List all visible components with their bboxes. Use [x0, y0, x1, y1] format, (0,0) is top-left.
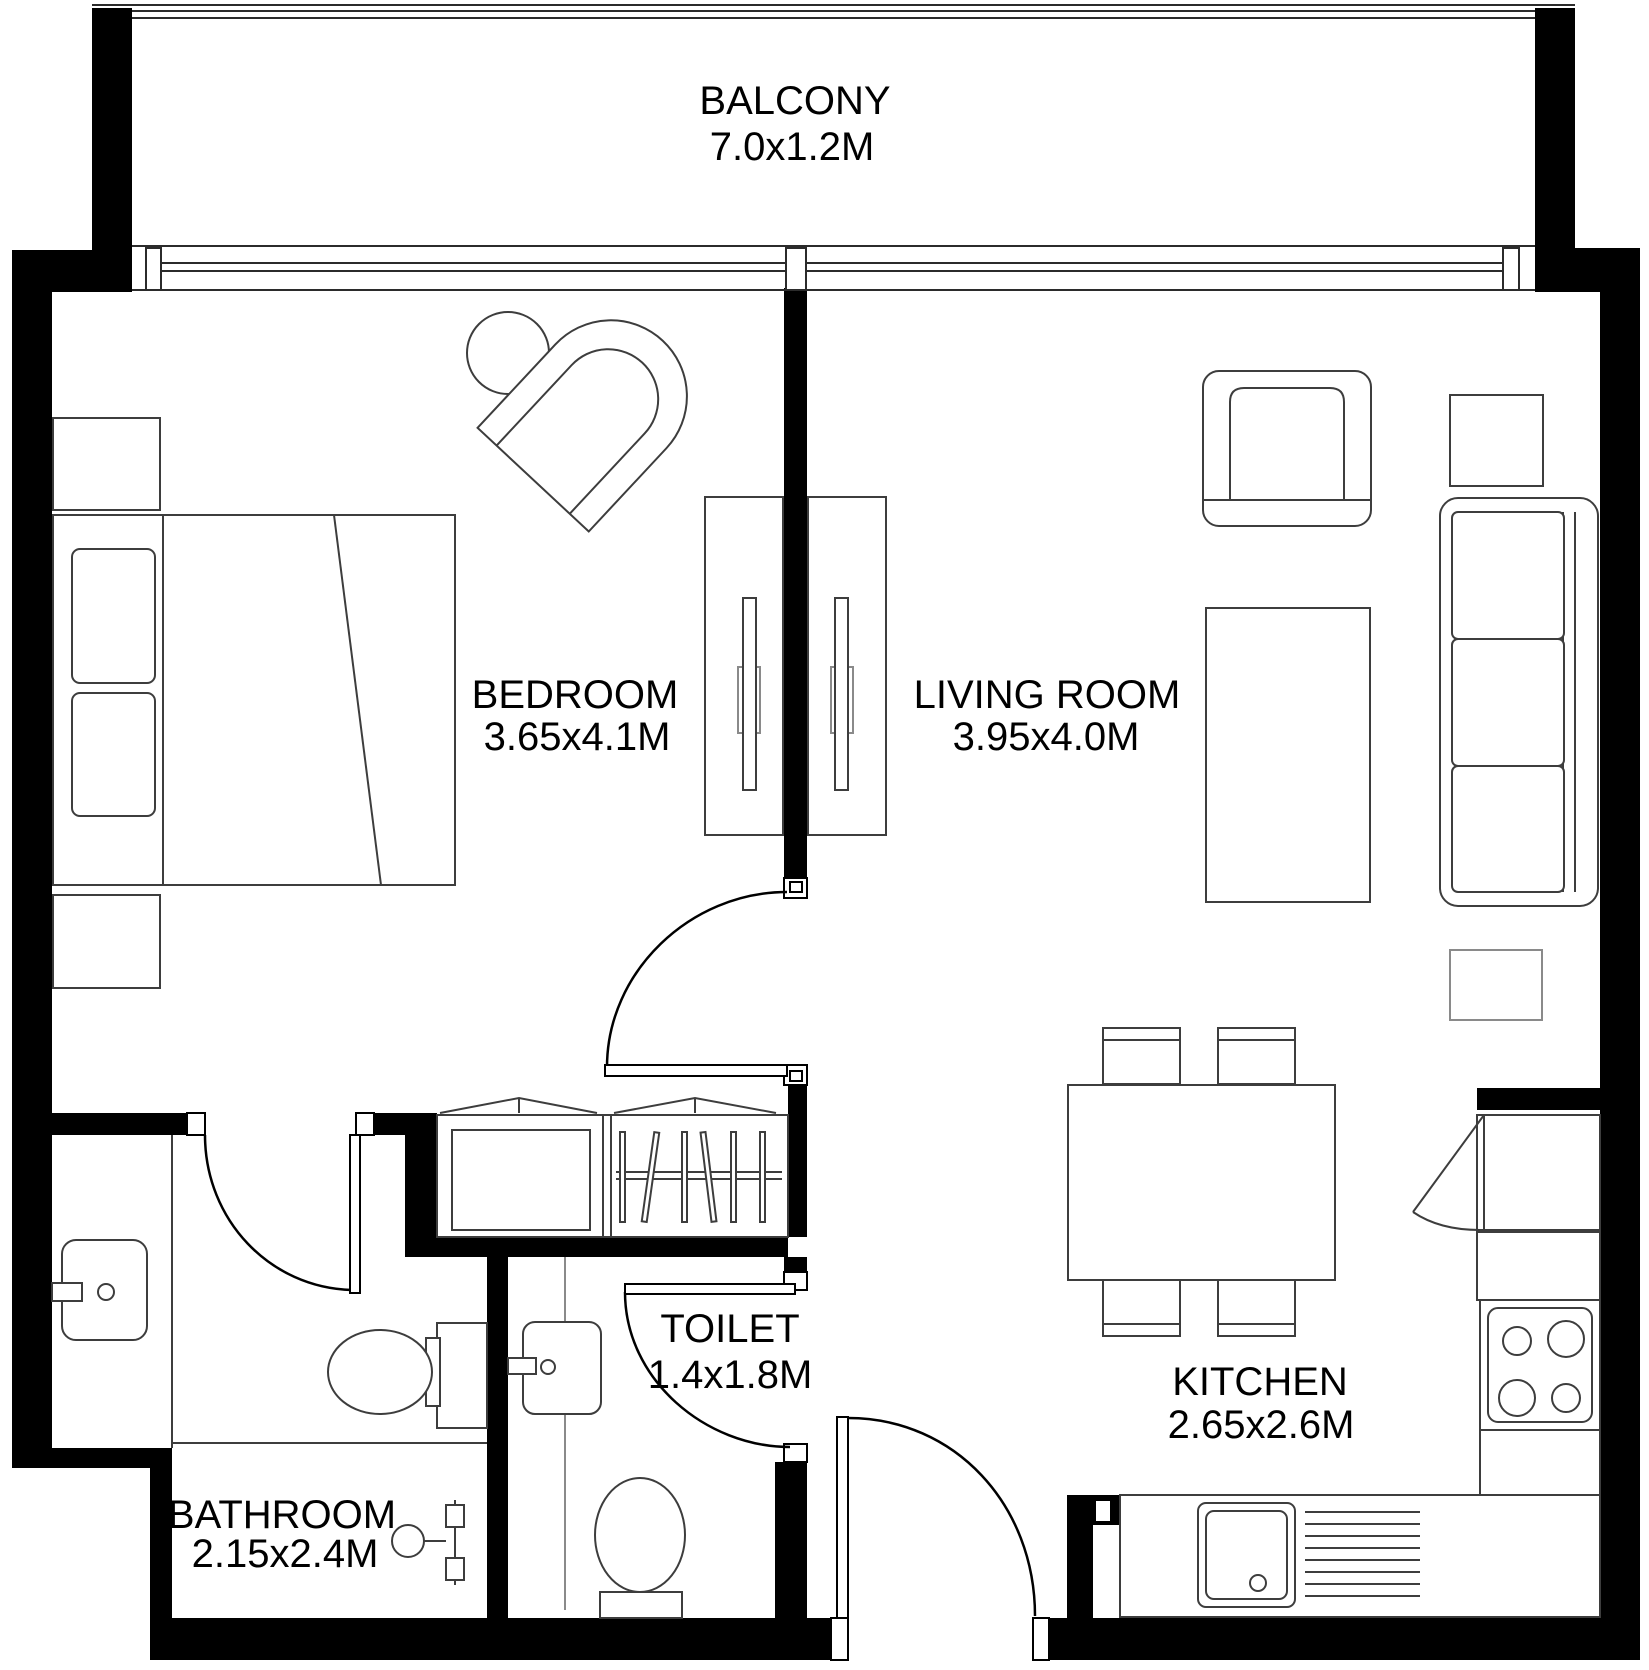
bathroom-closet-divider-wall — [405, 1135, 437, 1237]
bathroom-door — [205, 1135, 360, 1293]
floor-plan: BALCONY 7.0x1.2M BEDROOM 3.65x4.1M LIVIN… — [0, 0, 1649, 1670]
sofa-cushion — [1452, 766, 1564, 892]
entrance-door — [837, 1417, 1035, 1618]
bathroom-sink — [52, 1240, 147, 1340]
toilet-east-wall-top — [784, 1257, 807, 1272]
bottom-wall-left — [150, 1618, 847, 1660]
side-table — [1450, 950, 1542, 1020]
kitchen-counter — [1480, 1430, 1600, 1495]
bathroom-dims: 2.15x2.4M — [192, 1532, 379, 1576]
bathroom-label: BATHROOM — [168, 1493, 396, 1537]
bottom-left-step-wall-v — [150, 1468, 172, 1620]
bottom-left-step-wall — [12, 1448, 172, 1468]
corner-cabinet — [1413, 1115, 1600, 1230]
window-mullion-right — [1503, 248, 1519, 290]
bathroom-top-wall-right — [374, 1113, 437, 1135]
closet-shelf-section — [437, 1115, 603, 1237]
bathroom-top-wall-left — [52, 1113, 187, 1135]
bathroom-toilet — [328, 1323, 487, 1428]
right-exterior-wall — [1600, 288, 1640, 1660]
kitchen-dims: 2.65x2.6M — [1168, 1403, 1355, 1447]
dining-chair — [1103, 1028, 1180, 1084]
bedroom-living-divider-wall — [784, 288, 807, 880]
pillow — [72, 549, 155, 683]
bedroom-label: BEDROOM — [472, 673, 679, 717]
bathroom-toilet-divider-wall — [487, 1257, 508, 1618]
sofa — [1440, 498, 1598, 906]
living-room-label: LIVING ROOM — [914, 673, 1181, 717]
nightstand — [53, 418, 160, 510]
bedroom-furniture — [53, 289, 783, 988]
living-room-dims: 3.95x4.0M — [953, 715, 1140, 759]
toilet-sink — [508, 1322, 601, 1414]
toilet-dims: 1.4x1.8M — [648, 1353, 813, 1397]
dining-chair — [1218, 1280, 1295, 1336]
bifold-door-marks — [440, 1098, 776, 1113]
balcony-railing — [92, 5, 1575, 18]
toilet-wc — [595, 1478, 685, 1618]
wardrobe — [437, 1098, 788, 1237]
bedroom-dims: 3.65x4.1M — [484, 715, 671, 759]
closet-east-wall — [788, 1085, 807, 1237]
sofa-cushion — [1452, 512, 1564, 639]
toilet-label: TOILET — [660, 1307, 799, 1351]
tv-bedroom — [743, 598, 756, 790]
armchair — [1203, 371, 1371, 526]
kitchen-stub-wall-top — [1477, 1088, 1600, 1110]
stove — [1480, 1300, 1600, 1430]
top-right-step-wall — [1575, 248, 1640, 292]
balcony-dims: 7.0x1.2M — [710, 125, 875, 169]
balcony-left-wall — [92, 8, 132, 250]
balcony-right-wall — [1535, 8, 1575, 292]
toilet-fixtures — [508, 1257, 685, 1618]
sofa-cushion — [1452, 639, 1564, 766]
kitchen-stub-wall-entry — [1067, 1495, 1120, 1618]
bottom-wall-right — [1033, 1618, 1640, 1660]
closet-bottom-wall — [405, 1237, 788, 1257]
dining-table — [1068, 1085, 1335, 1280]
coffee-table — [1206, 608, 1370, 902]
kitchen-counter — [1477, 1232, 1600, 1300]
dining-chair — [1218, 1028, 1295, 1084]
closet-divider — [603, 1115, 611, 1237]
left-exterior-wall — [12, 250, 52, 1450]
kitchen-label: KITCHEN — [1172, 1360, 1348, 1404]
floor-plan-drawing: BALCONY 7.0x1.2M BEDROOM 3.65x4.1M LIVIN… — [0, 0, 1649, 1670]
nightstand — [53, 895, 160, 988]
dining-chair — [1103, 1280, 1180, 1336]
window-mullion-left — [146, 248, 161, 290]
dining-set — [1068, 1028, 1335, 1336]
bedroom-door — [605, 892, 787, 1076]
kitchen-sink — [1198, 1503, 1295, 1607]
pillow — [72, 693, 155, 816]
balcony-label: BALCONY — [699, 79, 890, 123]
toilet-east-wall-bottom — [775, 1462, 807, 1618]
side-table — [1450, 395, 1543, 486]
window-band — [132, 246, 1535, 290]
tv-living — [835, 598, 848, 790]
bathtub-faucet — [392, 1500, 464, 1585]
window-mullion-center — [786, 248, 806, 290]
kitchen-counter-sink-run — [1120, 1495, 1600, 1617]
